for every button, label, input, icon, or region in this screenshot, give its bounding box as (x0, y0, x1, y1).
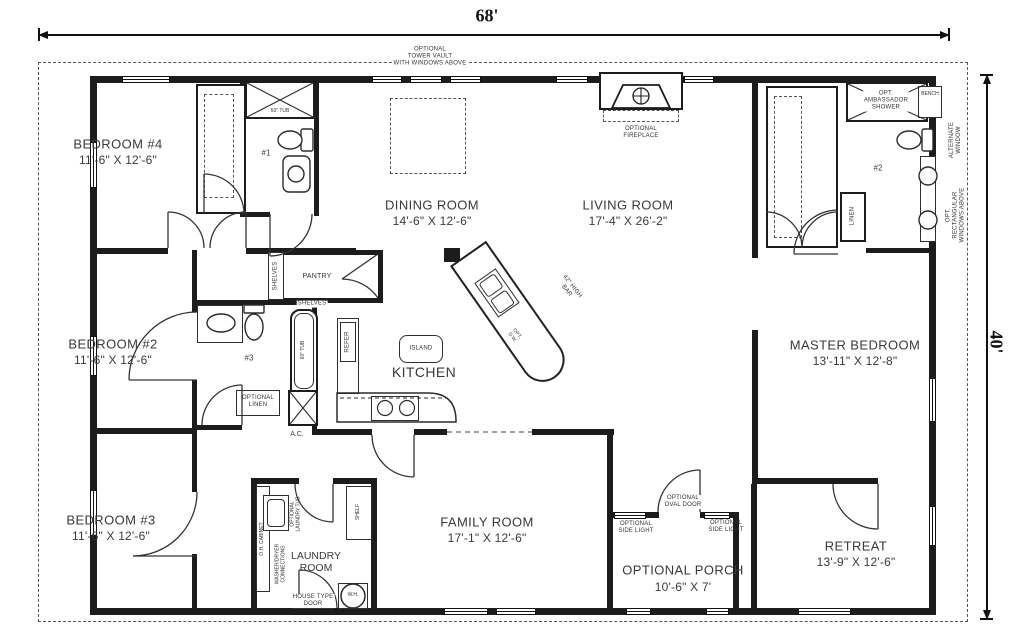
note-rect-windows: OPT. RECTANGULAR WINDOWS ABOVE (946, 185, 967, 246)
window-porch-bottom-1 (626, 608, 651, 615)
window-porch-top-2 (704, 512, 730, 519)
width-dimension-line (46, 34, 944, 36)
room-size-porch: 10'-6" X 7' (655, 581, 711, 595)
note-ac: A.C. (289, 431, 305, 439)
wall-master-retreat (752, 478, 878, 484)
window-retreat-right (929, 506, 936, 546)
height-tick-bottom (980, 618, 993, 620)
master-closet-rod (774, 96, 802, 238)
wall-master-west-upper (752, 76, 758, 258)
window-dining-2 (410, 76, 442, 83)
note-alternate-window: ALTERNATE WINDOW (949, 122, 963, 158)
range-stove (371, 396, 419, 421)
note-bench: BENCH (921, 92, 939, 98)
note-house-door: HOUSE TYPE DOOR (292, 594, 335, 608)
note-bath2: #2 (874, 163, 883, 172)
room-size-master: 13'-11" X 12'-8" (813, 355, 898, 369)
width-tick-right (948, 28, 950, 41)
window-dining-1 (372, 76, 402, 83)
window-family-2 (496, 608, 536, 615)
room-size-retreat: 13'-9" X 12'-6" (817, 556, 896, 570)
note-water-heater: W.H. (348, 593, 359, 599)
note-ambassador-shower: OPT. AMBASSADOR SHOWER (863, 91, 909, 112)
window-retreat-bottom (798, 608, 851, 615)
note-side-light-left: OPTIONAL SIDE LIGHT (618, 521, 653, 535)
wall-porch-west (607, 429, 613, 608)
note-shelves-side: SHELVES (273, 262, 280, 291)
note-fireplace: OPTIONAL FIREPLACE (622, 126, 659, 140)
room-label-retreat: RETREAT (825, 540, 888, 555)
room-label-laundry: LAUNDRY ROOM (291, 550, 341, 574)
height-dimension-label: 40' (986, 330, 1007, 353)
room-label-living: LIVING ROOM (582, 199, 673, 214)
wall-bath3-south (197, 425, 242, 430)
wall-bed2-bed3 (90, 428, 197, 434)
note-island: ISLAND (410, 346, 433, 353)
window-porch-bottom-2 (706, 608, 729, 615)
room-label-kitchen: KITCHEN (392, 364, 456, 380)
window-master-right (929, 378, 936, 422)
wall-exterior-top (90, 76, 936, 83)
wall-retreat-west (751, 484, 757, 608)
wall-bed4-south-a (90, 248, 168, 254)
note-side-light-right: OPTIONAL SIDE LIGHT (708, 520, 743, 534)
bed4-closet-rod (204, 94, 234, 198)
note-linen: LINEN (850, 207, 857, 226)
room-label-porch: OPTIONAL PORCH (622, 564, 743, 579)
wall-kitchen-south-b (414, 429, 447, 435)
wall-pantry-east (378, 250, 383, 303)
note-pantry: PANTRY (303, 273, 332, 281)
room-label-dining: DINING ROOM (385, 199, 479, 214)
floor-plan: 68' 40' (0, 0, 1017, 643)
note-tower-vault: OPTIONAL TOWER VAULT WITH WINDOWS ABOVE (393, 47, 468, 68)
room-label-bedroom4: BEDROOM #4 (73, 138, 162, 153)
fireplace-recess (599, 72, 683, 110)
note-oval-door: OPTIONAL OVAL DOOR (664, 495, 703, 509)
window-dining-3 (450, 76, 481, 83)
wall-kitchen-south-a (312, 429, 372, 435)
note-shelf: SHELF (356, 504, 362, 520)
laundry-tub-basin (267, 499, 285, 527)
window-family-1 (444, 608, 488, 615)
note-bath3: #3 (245, 353, 254, 362)
room-label-family: FAMILY ROOM (440, 516, 534, 531)
height-tick-top (980, 74, 993, 76)
master-vanity (920, 156, 936, 242)
room-label-bedroom2: BEDROOM #2 (68, 338, 157, 353)
wall-masterbath-south (866, 248, 932, 253)
window-porch-top-1 (614, 512, 646, 519)
wall-family-north (532, 429, 614, 435)
width-tick-left (38, 28, 40, 41)
wall-laundry-north-a (251, 478, 299, 484)
wall-hall-west-c (192, 554, 197, 608)
note-refrigerator: REFER (345, 331, 352, 352)
room-size-bedroom3: 11'-6" X 12'-6" (72, 530, 150, 544)
bath3-vanity (197, 305, 243, 343)
wall-hall-west-b (192, 380, 197, 492)
note-optional-linen: OPTIONAL LINEN (242, 395, 274, 409)
wall-laundry-north-b (333, 478, 377, 484)
wall-pantry-north (276, 250, 380, 255)
room-label-bedroom3: BEDROOM #3 (66, 514, 155, 529)
room-size-living: 17'-4" X 26'-2" (589, 215, 668, 229)
note-tub3: 60" TUB (301, 341, 307, 360)
note-oh-cabinet: O.H. CABINET (260, 522, 266, 555)
tower-vault-outline (390, 98, 466, 174)
wall-master-west-lower (752, 330, 758, 478)
note-washer-dryer: WASHER/DRYER CONNECTIONS (275, 544, 287, 585)
note-tub1: 60" TUB (270, 109, 291, 115)
note-bath1: #1 (262, 148, 271, 157)
room-size-bedroom2: 11'-6" X 12'-6" (74, 354, 152, 368)
window-living-1 (556, 76, 588, 83)
fireplace-hearth (603, 110, 679, 122)
note-laundry-tub: OPTIONAL LAUNDRY TUB (290, 496, 302, 531)
room-size-dining: 14'-6" X 12'-6" (393, 215, 472, 229)
window-living-2 (684, 76, 714, 83)
room-size-family: 17'-1" X 12'-6" (448, 532, 527, 546)
window-bed4-top (122, 76, 170, 83)
width-dimension-label: 68' (475, 6, 498, 27)
note-shelves: SHELVES (297, 301, 328, 308)
ac-closet (288, 390, 318, 426)
room-label-master: MASTER BEDROOM (790, 339, 921, 354)
height-dimension-line (986, 82, 988, 610)
room-size-bedroom4: 11'-6" X 12'-6" (79, 154, 157, 168)
